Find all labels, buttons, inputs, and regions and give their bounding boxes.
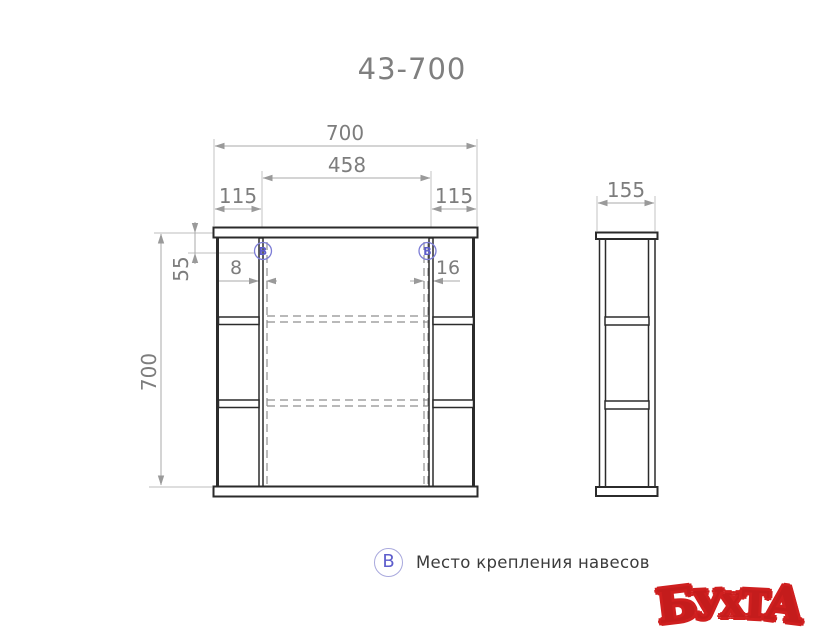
dim-mirror-width: 458 xyxy=(328,153,366,177)
dim-depth: 155 xyxy=(607,178,645,202)
technical-drawing: 700 458 115 115 155 700 55 8 16 xyxy=(0,0,840,640)
mount-marker-left: B xyxy=(255,243,272,260)
front-top-board xyxy=(214,228,478,238)
dim-right-offset: 115 xyxy=(435,184,473,208)
front-shelf xyxy=(219,317,260,325)
dim-mount-top-offset: 55 xyxy=(169,256,193,281)
dim-mount-left-gap: 8 xyxy=(230,257,242,279)
front-left-partition xyxy=(259,238,263,487)
legend-marker-letter: B xyxy=(382,551,394,572)
legend-marker-circle: B xyxy=(374,548,403,577)
side-back-edge xyxy=(600,238,606,487)
dim-height: 700 xyxy=(137,353,161,391)
side-front-edge xyxy=(649,238,656,487)
side-shelf xyxy=(605,317,649,325)
brand-logo: БУХТА xyxy=(650,574,812,636)
mount-marker-letter: B xyxy=(259,245,267,258)
front-shelf xyxy=(433,400,474,408)
dimension-labels: 700 458 115 115 155 700 55 8 16 xyxy=(137,121,645,391)
side-shelf xyxy=(605,401,649,409)
side-top-board xyxy=(596,233,658,240)
logo-letter: У xyxy=(692,585,725,625)
logo-letter: А xyxy=(763,579,808,631)
hidden-lines xyxy=(267,242,428,486)
front-bottom-board xyxy=(214,487,478,497)
legend-label: Место крепления навесов xyxy=(416,553,650,572)
front-right-partition xyxy=(429,238,433,487)
front-shelf xyxy=(433,317,474,325)
side-bottom-board xyxy=(596,487,658,496)
dim-mount-right-gap: 16 xyxy=(436,257,460,279)
front-shelf xyxy=(219,400,260,408)
mount-marker-letter: B xyxy=(423,245,431,258)
dim-left-offset: 115 xyxy=(219,184,257,208)
side-view xyxy=(596,233,658,497)
dim-overall-width: 700 xyxy=(326,121,364,145)
legend: B Место крепления навесов xyxy=(374,548,650,577)
